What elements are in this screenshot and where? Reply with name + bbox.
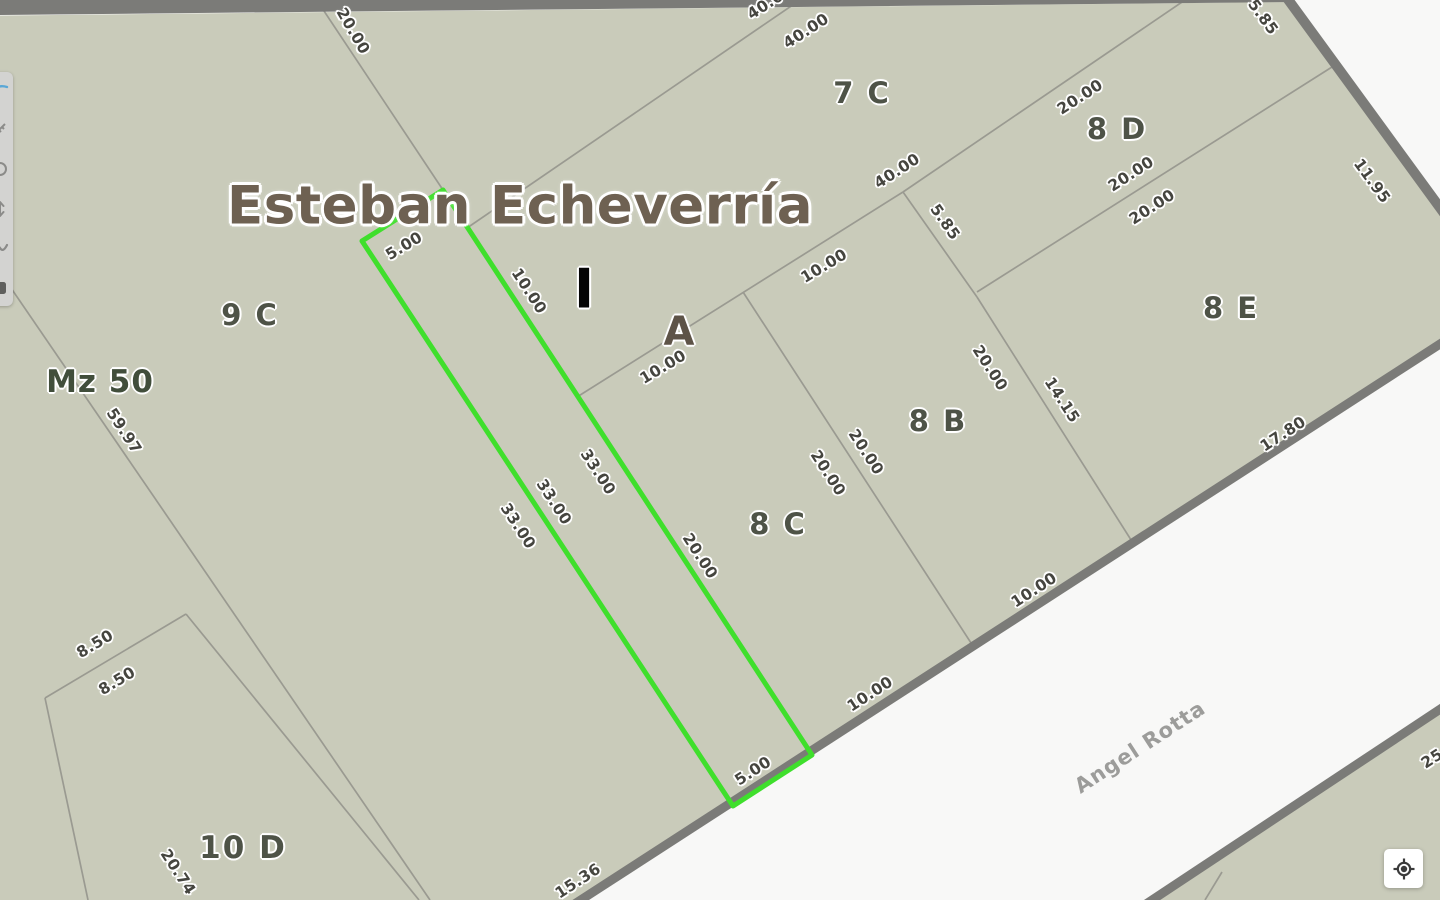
parcel-label-9c: 9 C — [221, 298, 279, 332]
parcel-label-8b: 8 B — [909, 404, 967, 438]
locality-title: Esteban Echeverría — [227, 176, 813, 237]
vertical-move-icon[interactable] — [0, 199, 10, 219]
crosshair-target-icon — [1392, 857, 1416, 881]
freehand-icon[interactable] — [0, 238, 10, 258]
layers-icon[interactable] — [0, 278, 10, 298]
manzana-label: Mz 50 — [46, 364, 154, 400]
pan-icon[interactable] — [0, 80, 10, 100]
parcel-label-8c: 8 C — [749, 507, 807, 541]
circle-tool-icon[interactable] — [0, 159, 10, 179]
parcel-label-8e: 8 E — [1203, 291, 1259, 325]
block-roman-label: I — [574, 258, 594, 321]
parcel-label-8d: 8 D — [1087, 112, 1147, 146]
parcel-label-7c: 7 C — [833, 76, 891, 110]
map-canvas[interactable] — [0, 0, 1440, 900]
measure-icon[interactable] — [0, 120, 10, 140]
locate-button[interactable] — [1384, 849, 1423, 888]
map-toolbar — [0, 72, 13, 306]
cadastral-map-viewer: Esteban Echeverría I A Mz 50 Angel Rotta… — [0, 0, 1440, 900]
parcel-label-10d: 10 D — [199, 830, 287, 866]
